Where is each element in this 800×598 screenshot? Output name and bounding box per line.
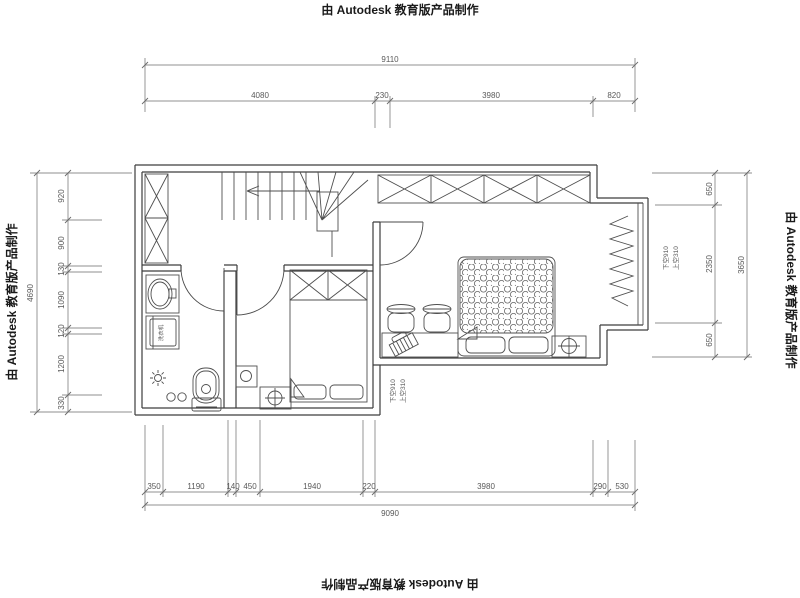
dim-label: 1200 xyxy=(57,355,66,373)
ceiling-light-symbol xyxy=(150,370,166,386)
blanket-fold xyxy=(291,379,304,397)
dim-label: 650 xyxy=(705,182,714,196)
window-right xyxy=(638,203,643,325)
dim-label: 4690 xyxy=(26,284,35,302)
dim-label: 350 xyxy=(147,482,161,491)
dimension-bottom: 350 1190 140 450 1940 220 3980 290 530 9… xyxy=(142,420,638,518)
nightstand-second xyxy=(260,387,291,409)
dim-label: 290 xyxy=(593,482,607,491)
dim-label: 820 xyxy=(607,91,621,100)
dim-label: 4080 xyxy=(251,91,269,100)
door-bathroom xyxy=(181,268,224,311)
walls xyxy=(135,165,648,415)
wardrobe-master xyxy=(378,175,590,203)
dim-label: 1090 xyxy=(57,291,66,309)
dim-label: 650 xyxy=(705,333,714,347)
bed-master xyxy=(458,257,555,356)
dim-label: 450 xyxy=(243,482,257,491)
svg-text:下空910: 下空910 xyxy=(388,379,397,403)
bed-second xyxy=(290,300,367,402)
window-annotation-right: 上空310 下空910 xyxy=(661,246,680,270)
dimension-top: 9110 4080 230 3980 820 xyxy=(142,55,638,128)
washbasin xyxy=(146,275,179,313)
dim-label: 330 xyxy=(57,396,66,410)
entry-cabinet xyxy=(145,174,168,263)
desk-chair xyxy=(387,305,415,333)
dim-label: 920 xyxy=(57,189,66,203)
dim-label: 3980 xyxy=(482,91,500,100)
floor-plan-drawing: 由 Autodesk 教育版产品制作 由 Autodesk 教育版产品制作 由 … xyxy=(0,0,800,598)
floor-drain xyxy=(167,393,186,401)
dim-label: 900 xyxy=(57,236,66,250)
faucet xyxy=(169,289,176,298)
dim-label: 3650 xyxy=(737,256,746,274)
dim-label: 1190 xyxy=(187,482,205,491)
pillow xyxy=(330,385,363,399)
plan-svg: 9110 4080 230 3980 820 350 1190 140 450 … xyxy=(0,0,800,598)
dim-label: 140 xyxy=(226,482,240,491)
dim-label: 530 xyxy=(615,482,629,491)
dim-label: 220 xyxy=(362,482,376,491)
dim-label: 3980 xyxy=(477,482,495,491)
pillow xyxy=(509,337,548,353)
dim-label: 1940 xyxy=(303,482,321,491)
washing-machine-label: 洗衣机 xyxy=(157,324,165,341)
nightstand-master xyxy=(552,336,586,357)
stairs xyxy=(222,172,368,257)
svg-text:下空910: 下空910 xyxy=(661,246,670,270)
dim-label: 2350 xyxy=(705,255,714,273)
desk-lamp xyxy=(387,328,418,356)
dim-label: 130 xyxy=(57,262,66,276)
mattress-pattern xyxy=(460,259,553,333)
dim-label: 120 xyxy=(57,324,66,338)
desk xyxy=(382,328,458,357)
wardrobe-second xyxy=(290,270,367,300)
svg-text:上空310: 上空310 xyxy=(398,379,407,403)
dimension-left: 4690 920 900 130 1090 120 1200 330 xyxy=(26,170,132,415)
dim-label: 9110 xyxy=(381,55,399,64)
watermark-top: 由 Autodesk 教育版产品制作 xyxy=(300,2,500,18)
toilet xyxy=(192,368,221,411)
curtain-symbol xyxy=(610,216,633,306)
stool-second xyxy=(236,366,257,387)
dim-label: 9090 xyxy=(381,509,399,518)
dim-label: 230 xyxy=(375,91,389,100)
washing-machine: 洗衣机 xyxy=(146,316,179,349)
watermark-left: 由 Autodesk 教育版产品制作 xyxy=(4,202,20,402)
window-annotation-bottom: 上空310 下空910 xyxy=(388,379,407,403)
door-master-bedroom xyxy=(380,222,423,265)
door-second-bedroom xyxy=(237,268,284,315)
watermark-right: 由 Autodesk 教育版产品制作 xyxy=(783,190,799,390)
watermark-bottom: 由 Autodesk 教育版产品制作 xyxy=(300,576,500,592)
svg-text:上空310: 上空310 xyxy=(671,246,680,270)
desk-chair xyxy=(423,305,451,333)
